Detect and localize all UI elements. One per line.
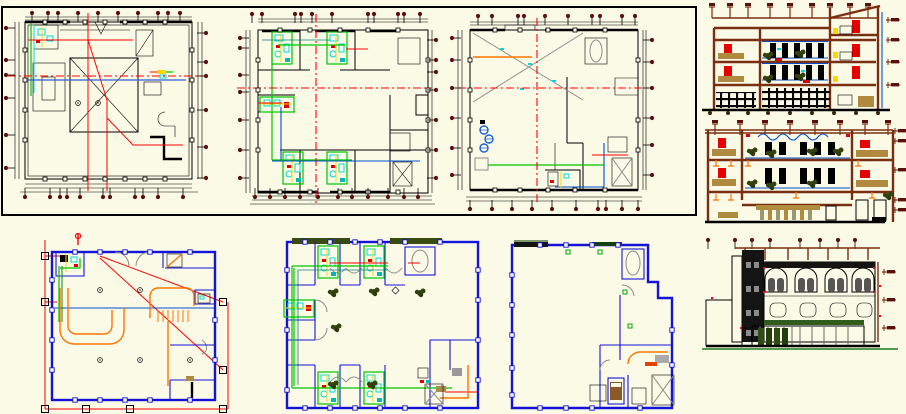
- section2-bar: [718, 200, 886, 220]
- elevation-right-markers: [878, 262, 896, 342]
- cad-drawing: floor plan 1: [0, 0, 906, 414]
- plan6-rooms: [590, 352, 674, 405]
- section2-sprinklers: [713, 160, 875, 200]
- plan5-side-bath: [284, 300, 314, 317]
- section1-ground-shrubs: [708, 111, 880, 115]
- front-elevation: front elevation: [702, 238, 898, 349]
- section-2: building section 2: [705, 120, 906, 222]
- plan4-right-cluster: [195, 290, 215, 304]
- plan4-ducts: [60, 288, 194, 386]
- planter-strip: [764, 320, 864, 325]
- section1-middle: [762, 42, 830, 109]
- arched-windows-upper: [765, 268, 874, 292]
- storefront: [742, 326, 864, 346]
- plan-6: open floor plan: [510, 241, 674, 410]
- plan1-dim-markers: [4, 11, 208, 199]
- plan3-pumps: [475, 120, 493, 170]
- plan-4: installation plan: [42, 233, 229, 413]
- section-1: building section 1: [702, 3, 900, 115]
- floor-plan-3: floor plan 3: [450, 14, 654, 211]
- elevation-red-dots: [711, 267, 875, 329]
- section1-top-markers: [709, 3, 871, 18]
- plan3-columns: [468, 28, 640, 192]
- plan4-plumbing: [60, 254, 80, 272]
- floor-plan-1: floor plan 1: [4, 11, 208, 199]
- arched-windows-lower: [770, 303, 872, 317]
- plan1-columns: [23, 20, 194, 181]
- section1-right: [833, 20, 874, 107]
- plan5-columns: [285, 240, 480, 410]
- cad-sheet: floor plan 1: [0, 0, 906, 414]
- plan2-columns: [256, 28, 430, 194]
- plan5-service-room: [418, 365, 468, 404]
- plan2-side-bath: [260, 97, 294, 112]
- floor-plan-2: floor plan 2: [237, 12, 438, 205]
- plan-5: typical floor plan: [284, 238, 480, 410]
- section1-right-markers: [886, 17, 900, 88]
- section2-atrium: [745, 134, 850, 190]
- section2-right-markers: [893, 128, 906, 213]
